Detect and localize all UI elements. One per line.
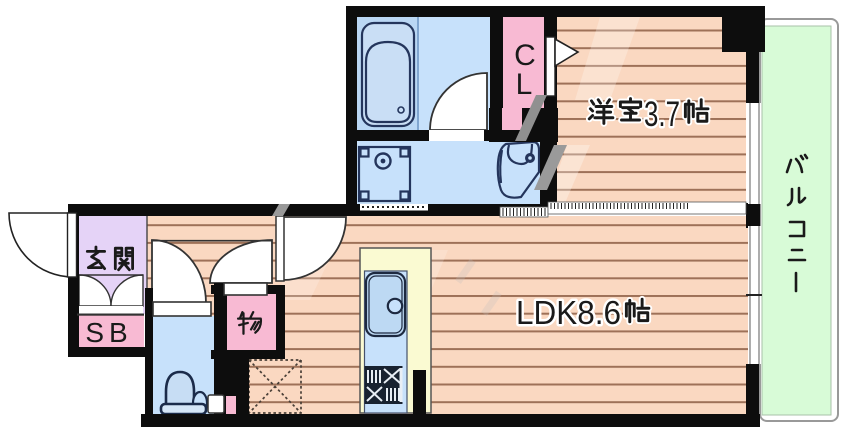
svg-text:LDK8.6: LDK8.6 [516, 294, 621, 331]
svg-text:3.7: 3.7 [644, 95, 680, 134]
svg-text:L: L [516, 68, 533, 101]
svg-text:SB: SB [85, 317, 132, 348]
